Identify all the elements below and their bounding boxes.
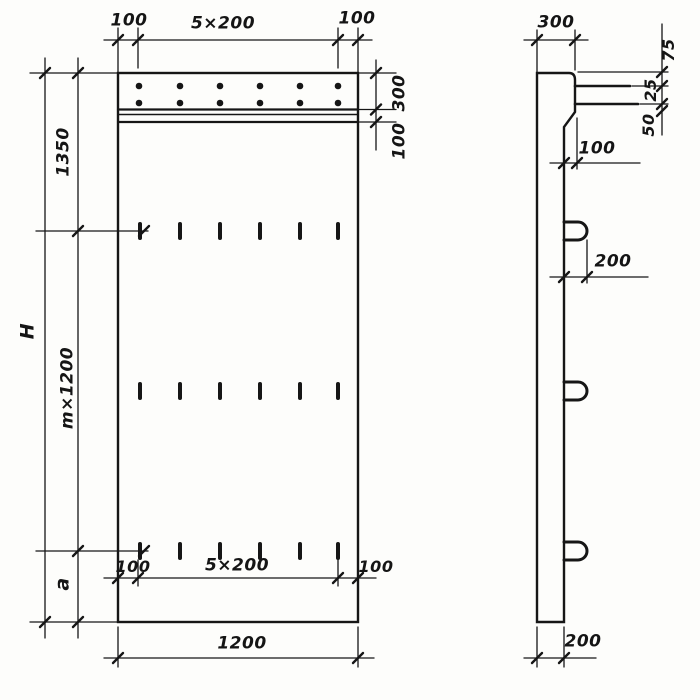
dim-front-top-left: 100 (111, 13, 148, 30)
side-profile-outline (537, 73, 575, 622)
dim-front-height-top: 1350 (56, 127, 73, 176)
lifting-loop (564, 542, 587, 560)
slot-row-2 (140, 384, 338, 398)
slot-row-1 (140, 224, 338, 238)
dim-front-height-total: H (19, 323, 38, 339)
dim-side-bar-bot: 50 (641, 113, 657, 136)
lifting-loop (564, 382, 587, 400)
lifting-loop (564, 222, 587, 240)
anchor-dots (136, 83, 342, 107)
front-left-dimensions (30, 58, 149, 638)
dim-front-bot-right: 100 (359, 559, 394, 575)
dim-front-width: 1200 (217, 636, 266, 653)
front-top-dimension (104, 28, 372, 73)
dim-front-height-bottom: a (54, 577, 73, 590)
dim-front-band: 300 (392, 75, 409, 112)
dim-front-top-mid: 5×200 (191, 16, 255, 33)
dim-side-thickness: 200 (565, 634, 602, 651)
front-panel-outline (118, 73, 358, 622)
dim-front-strip: 100 (392, 123, 409, 160)
drawing-canvas: 100 5×200 100 300 100 H 1350 m×1200 a 10… (0, 0, 700, 700)
side-top-bars (575, 86, 638, 104)
dim-front-top-right: 100 (339, 11, 376, 28)
dim-side-bar-top: 75 (661, 38, 677, 61)
dim-front-bot-left: 100 (116, 559, 151, 575)
side-top-dimension (524, 30, 588, 73)
drawing-linework (0, 0, 700, 700)
dim-side-bar-mid: 25 (643, 78, 659, 101)
dim-side-step: 100 (579, 141, 616, 158)
dim-front-height-mid: m×1200 (60, 347, 77, 429)
dim-side-loop: 200 (595, 254, 632, 271)
dim-side-top: 300 (538, 15, 575, 32)
front-top-band (118, 110, 358, 123)
dim-front-bot-mid: 5×200 (205, 558, 269, 575)
